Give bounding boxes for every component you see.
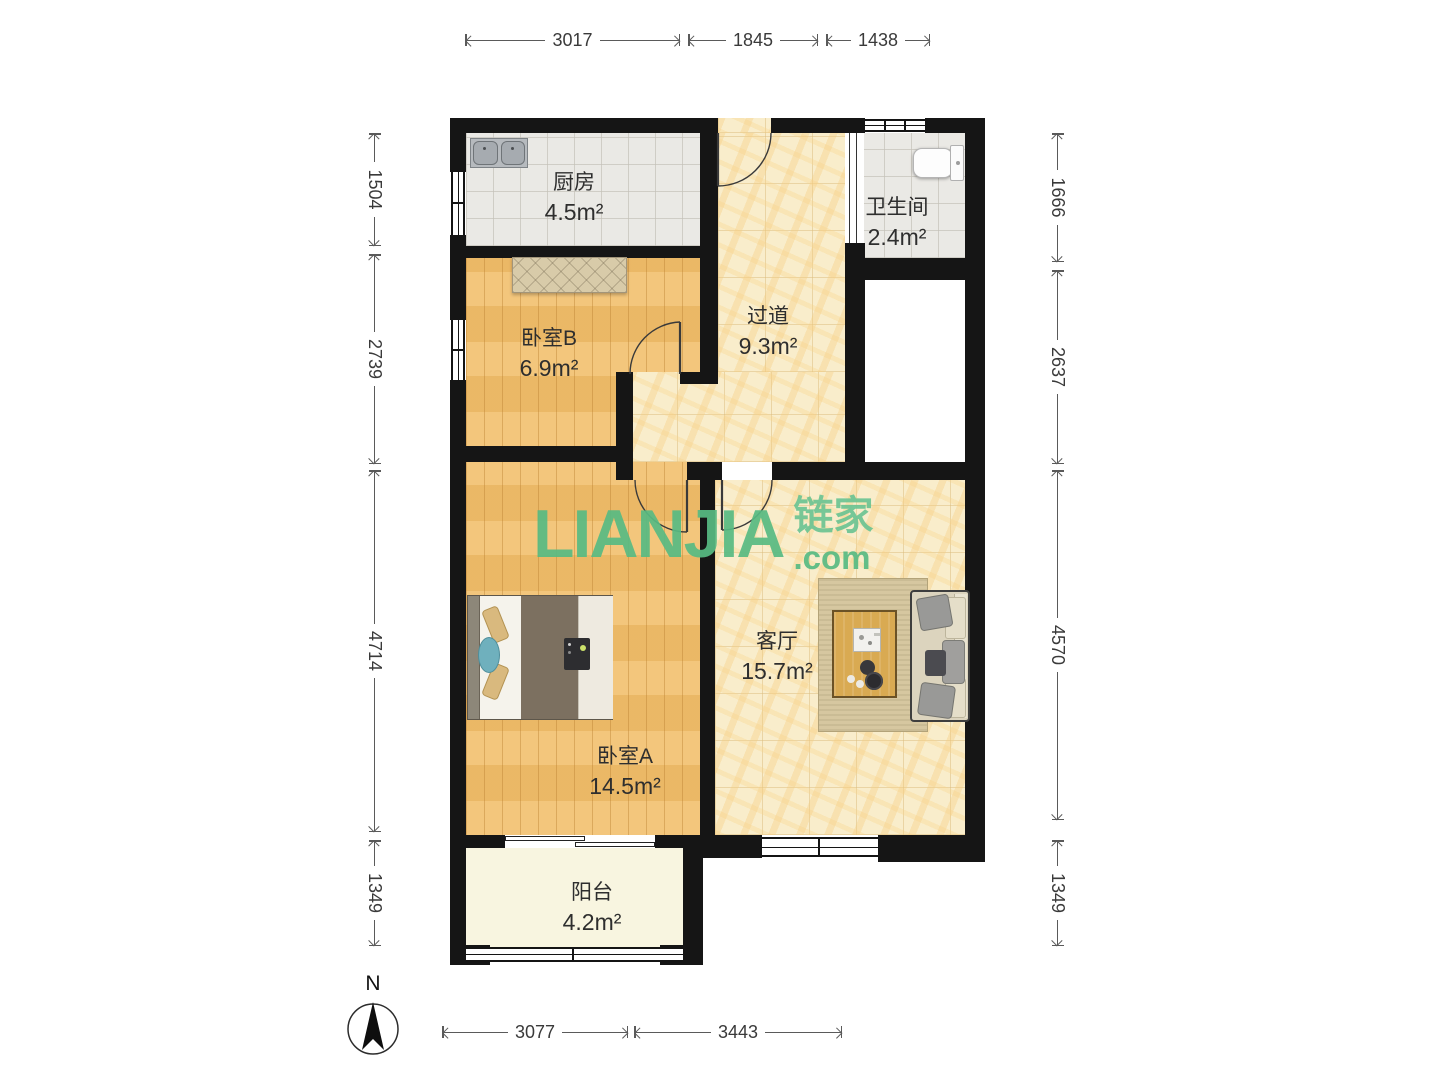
door-swings-layer: [0, 0, 1440, 1080]
dim-top-2: 1845: [688, 28, 818, 52]
bed-tray: [564, 638, 590, 670]
dim-left-4: 1349: [363, 840, 387, 946]
dim-right-2: 2637: [1046, 270, 1070, 464]
dim-left-3: 4714: [363, 470, 387, 832]
bedroom-b-door-arc: [630, 322, 680, 374]
floorplan-canvas: 厨房4.5m² 卫生间2.4m² 过道9.3m² 卧室B6.9m² 客厅15.7…: [0, 0, 1440, 1080]
kitchen-sink: [470, 138, 528, 168]
entrance-door-arc: [718, 133, 771, 186]
room-label-balcony: 阳台4.2m²: [563, 876, 622, 936]
dim-left-1: 1504: [363, 133, 387, 246]
bedroom-a-door-arc: [635, 480, 687, 532]
room-label-bedroom-b: 卧室B6.9m²: [520, 322, 579, 382]
compass-north-label: N: [365, 972, 380, 995]
sofa-cushion: [915, 593, 953, 631]
room-label-living-room: 客厅15.7m²: [741, 625, 813, 685]
dim-left-2: 2739: [363, 254, 387, 464]
sofa-cushion: [917, 682, 956, 720]
dresser: [512, 257, 627, 293]
bowl: [865, 672, 883, 690]
bedside-stool: [478, 637, 500, 673]
cup: [847, 675, 855, 683]
compass-needle: [362, 1002, 384, 1050]
room-label-bedroom-a: 卧室A14.5m²: [589, 740, 661, 800]
coffee-table: [832, 610, 897, 698]
dim-bottom-1: 3077: [442, 1020, 628, 1044]
living-room-door-arc: [722, 480, 772, 530]
dim-right-3: 4570: [1046, 470, 1070, 820]
sofa: [910, 590, 970, 722]
room-label-hallway: 过道9.3m²: [739, 300, 798, 360]
dim-right-4: 1349: [1046, 840, 1070, 946]
toilet: [913, 145, 965, 181]
tea-tray: [853, 628, 881, 652]
sofa-cushion: [925, 650, 946, 676]
dim-right-1: 1666: [1046, 133, 1070, 262]
dim-bottom-2: 3443: [634, 1020, 842, 1044]
room-label-kitchen: 厨房4.5m²: [545, 166, 604, 226]
room-label-bathroom: 卫生间2.4m²: [866, 191, 929, 251]
dim-top-3: 1438: [826, 28, 930, 52]
compass-icon: N: [338, 972, 408, 1067]
dim-top-1: 3017: [465, 28, 680, 52]
cup: [856, 680, 864, 688]
